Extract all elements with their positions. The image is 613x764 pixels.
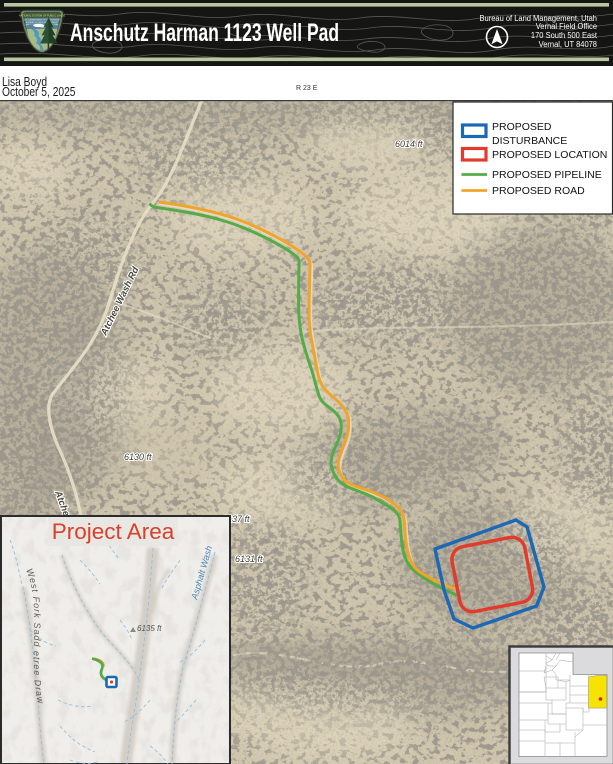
svg-text:PROPOSED ROAD: PROPOSED ROAD [492,185,585,197]
svg-text:6130 ft: 6130 ft [124,452,152,462]
svg-text:PROPOSED PIPELINE: PROPOSED PIPELINE [492,169,602,181]
svg-text:6014 ft: 6014 ft [395,139,423,149]
svg-text:Project Area: Project Area [52,519,175,544]
svg-text:6131 ft: 6131 ft [235,554,263,564]
svg-text:NATIONAL SYSTEM OF PUBLIC LAND: NATIONAL SYSTEM OF PUBLIC LANDS [19,15,65,18]
svg-text:DISTURBANCE: DISTURBANCE [492,135,567,147]
svg-text:BUREAU OF LAND MANAGEMENT: BUREAU OF LAND MANAGEMENT [26,21,59,24]
svg-text:PROPOSED LOCATION: PROPOSED LOCATION [492,149,607,161]
svg-text:PROPOSED: PROPOSED [492,121,552,133]
svg-text:6135 ft: 6135 ft [137,624,162,633]
